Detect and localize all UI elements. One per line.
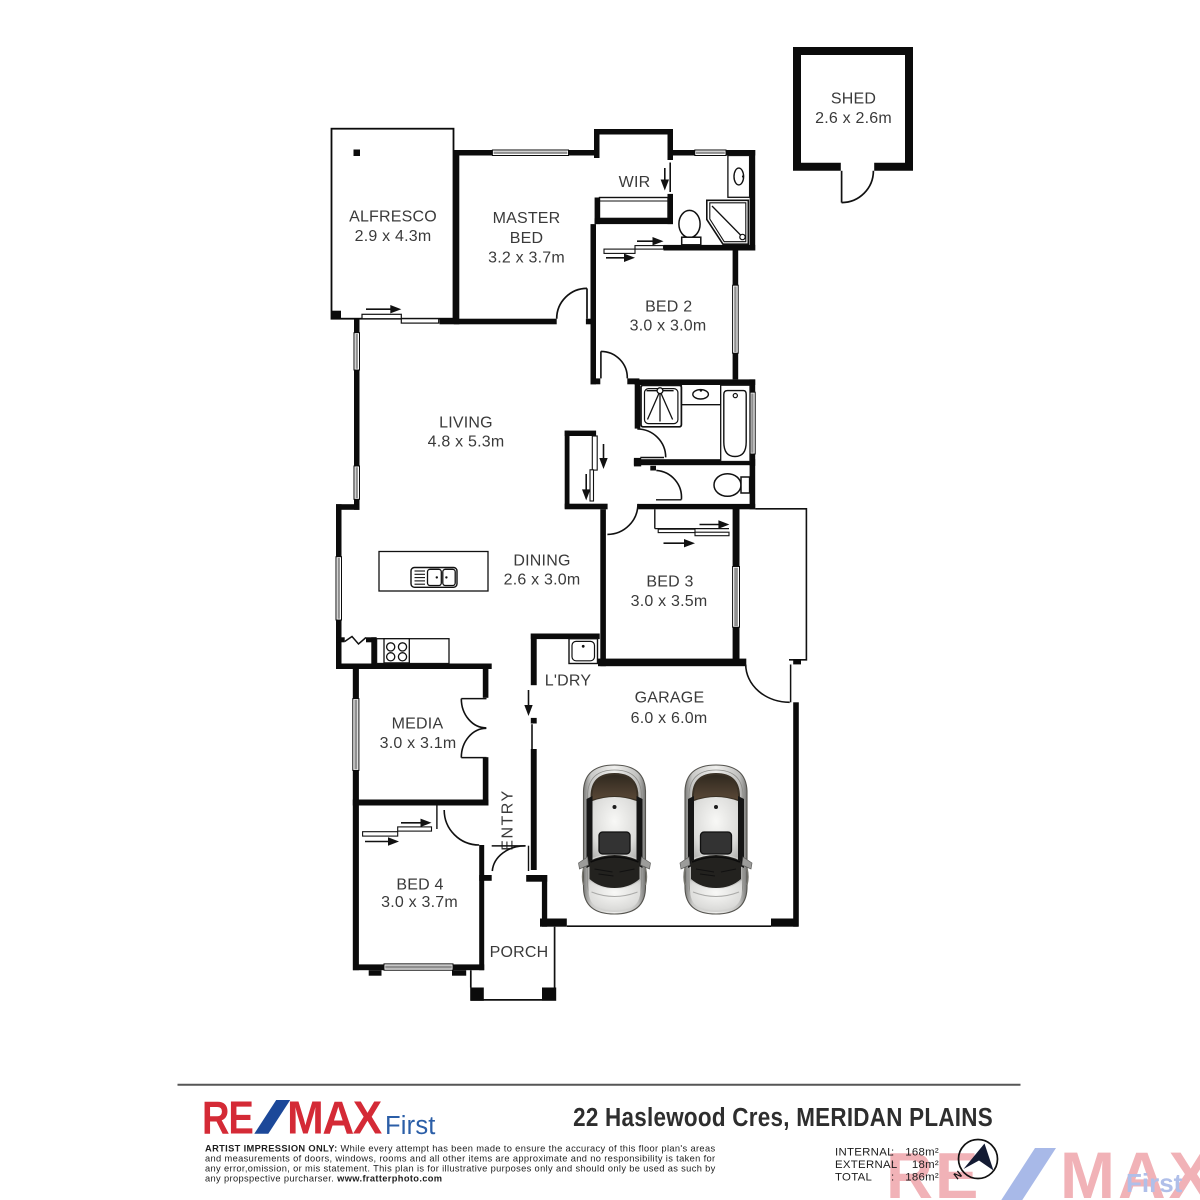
- svg-text:DINING: DINING: [513, 553, 570, 570]
- svg-text:any propspective purcharser. w: any propspective purcharser. www.fratter…: [205, 1174, 442, 1184]
- svg-text:EXTERNAL: EXTERNAL: [835, 1159, 898, 1171]
- svg-text:BED 4: BED 4: [396, 877, 443, 894]
- svg-text:TOTAL: TOTAL: [835, 1172, 872, 1184]
- svg-text:BED: BED: [510, 230, 544, 247]
- svg-text::: :: [891, 1147, 894, 1159]
- svg-text:WIR: WIR: [619, 174, 651, 191]
- svg-text:BED 2: BED 2: [645, 299, 692, 316]
- svg-text:LIVING: LIVING: [439, 415, 493, 432]
- svg-text::: :: [891, 1159, 894, 1171]
- svg-text::: :: [891, 1172, 894, 1184]
- svg-text:any error,omission, or mis sta: any error,omission, or mis statement. Th…: [205, 1164, 716, 1174]
- svg-text:BED 3: BED 3: [646, 574, 693, 591]
- svg-text:MASTER: MASTER: [493, 210, 561, 227]
- svg-text:2.9 x 4.3m: 2.9 x 4.3m: [355, 228, 432, 245]
- svg-text:MEDIA: MEDIA: [392, 715, 444, 732]
- svg-text:3.0 x 3.5m: 3.0 x 3.5m: [631, 593, 708, 610]
- svg-text:ALFRESCO: ALFRESCO: [349, 209, 437, 226]
- svg-text:PORCH: PORCH: [490, 944, 549, 961]
- svg-text:3.2 x 3.7m: 3.2 x 3.7m: [488, 250, 565, 267]
- svg-text:2.6 x 3.0m: 2.6 x 3.0m: [504, 572, 581, 589]
- svg-text:ENTRY: ENTRY: [500, 789, 517, 850]
- svg-text:GARAGE: GARAGE: [635, 690, 705, 707]
- svg-text:18m²: 18m²: [912, 1159, 939, 1171]
- svg-text:3.0 x 3.1m: 3.0 x 3.1m: [380, 735, 457, 752]
- svg-text:SHED: SHED: [831, 91, 876, 108]
- svg-text:6.0 x 6.0m: 6.0 x 6.0m: [631, 710, 708, 727]
- svg-text:MAX: MAX: [287, 1092, 382, 1144]
- svg-text:3.0 x 3.0m: 3.0 x 3.0m: [630, 317, 707, 334]
- svg-text:186m²: 186m²: [905, 1172, 939, 1184]
- svg-text:4.8 x 5.3m: 4.8 x 5.3m: [428, 433, 505, 450]
- svg-text:RE: RE: [202, 1092, 253, 1143]
- svg-text:and measurements of doors, win: and measurements of doors, windows, room…: [205, 1154, 715, 1164]
- svg-text:L'DRY: L'DRY: [545, 673, 592, 690]
- svg-text:3.0 x 3.7m: 3.0 x 3.7m: [381, 894, 458, 911]
- svg-text:ARTIST IMPRESSION ONLY: While: ARTIST IMPRESSION ONLY: While every atte…: [205, 1144, 715, 1154]
- svg-text:INTERNAL: INTERNAL: [835, 1147, 894, 1159]
- svg-text:First: First: [1126, 1168, 1183, 1198]
- svg-text:168m²: 168m²: [905, 1147, 939, 1159]
- svg-text:2.6 x 2.6m: 2.6 x 2.6m: [815, 110, 892, 127]
- svg-text:22 Haslewood Cres, MERIDAN PLA: 22 Haslewood Cres, MERIDAN PLAINS: [573, 1104, 993, 1133]
- svg-text:First: First: [385, 1112, 436, 1140]
